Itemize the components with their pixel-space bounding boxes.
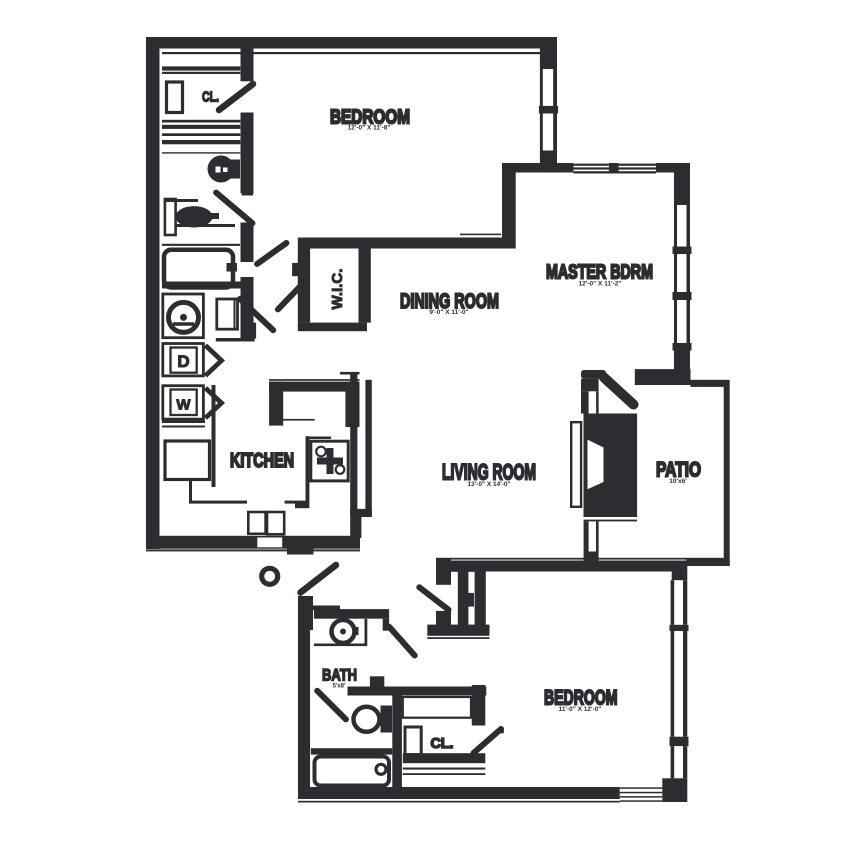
svg-text:9'-0" X 11'-0": 9'-0" X 11'-0" xyxy=(429,309,468,316)
svg-text:10'x6': 10'x6' xyxy=(669,478,687,485)
svg-text:12'-0" X 11'-2": 12'-0" X 11'-2" xyxy=(579,281,622,288)
svg-text:D: D xyxy=(177,352,189,371)
svg-text:11'-0" X 12'-0": 11'-0" X 12'-0" xyxy=(559,706,602,713)
svg-text:KITCHEN: KITCHEN xyxy=(230,450,294,472)
svg-text:13'-0" X 14'-0": 13'-0" X 14'-0" xyxy=(467,481,510,488)
svg-text:W: W xyxy=(176,397,191,414)
svg-text:W.I.C.: W.I.C. xyxy=(329,269,346,310)
svg-text:5'x8': 5'x8' xyxy=(333,684,346,690)
svg-text:CL.: CL. xyxy=(202,89,219,106)
svg-text:CL.: CL. xyxy=(431,735,454,752)
svg-text:12'-0" X 11'-8": 12'-0" X 11'-8" xyxy=(348,125,391,132)
svg-text:BATH: BATH xyxy=(322,666,357,685)
